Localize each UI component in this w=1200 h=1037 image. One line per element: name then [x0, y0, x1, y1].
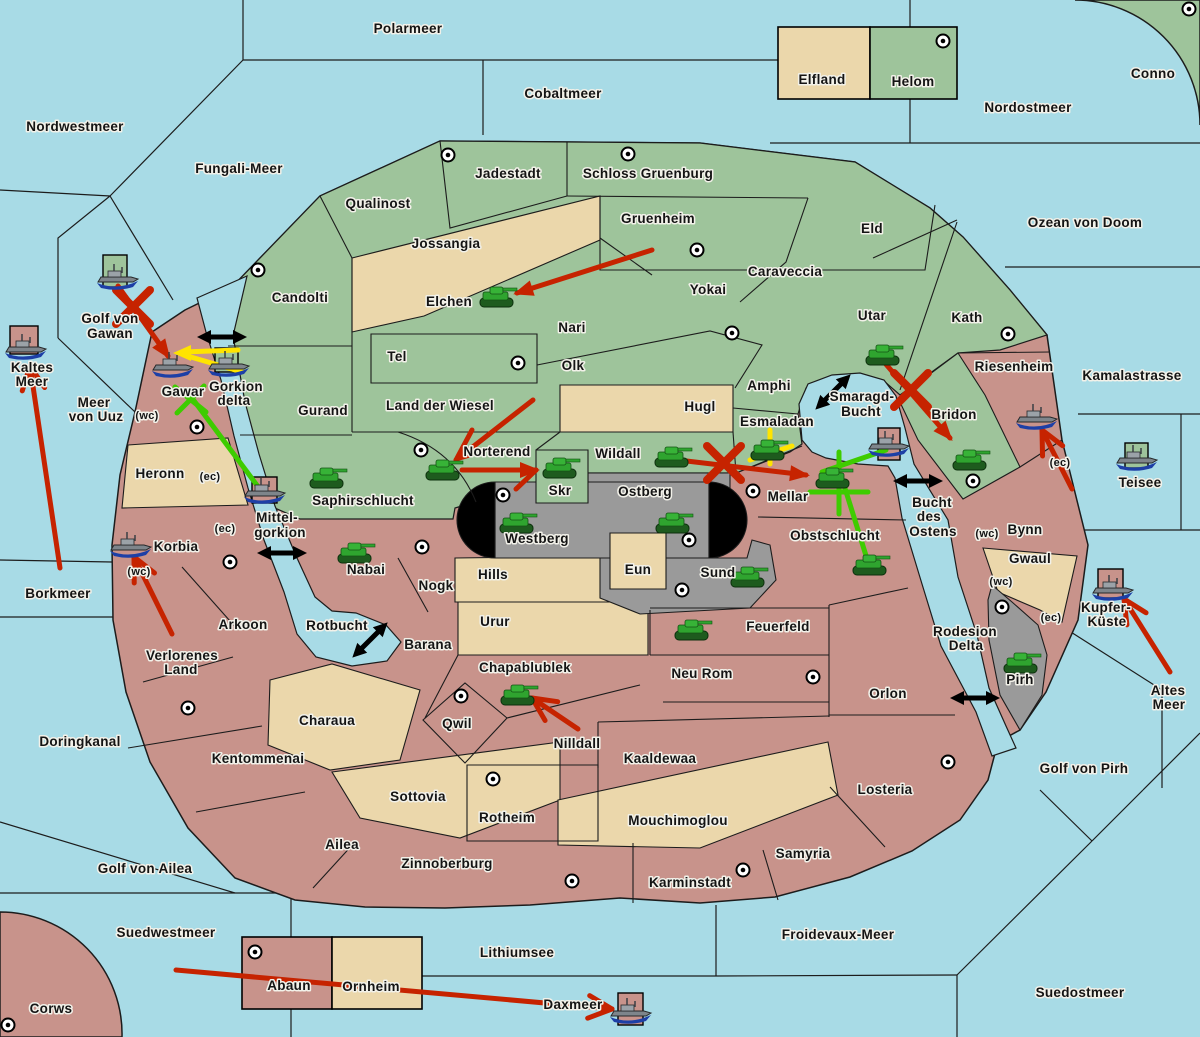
territory-label[interactable]: Mouchimoglou: [628, 813, 728, 828]
sea-label[interactable]: Polarmeer: [374, 21, 443, 36]
sea-label[interactable]: Teisee: [1119, 475, 1162, 490]
sea-label[interactable]: Ozean von Doom: [1028, 215, 1142, 230]
territory-label[interactable]: Corws: [30, 1001, 73, 1016]
sea-label[interactable]: Bucht: [912, 495, 952, 510]
territory-label[interactable]: Bynn: [1008, 522, 1043, 537]
supply-center-icon: [683, 534, 696, 547]
sea-label[interactable]: Meer: [16, 374, 49, 389]
territory-label[interactable]: Tel: [387, 349, 406, 364]
territory-label[interactable]: Zinnoberburg: [401, 856, 492, 871]
territory-label[interactable]: Neu Rom: [671, 666, 732, 681]
sea-label[interactable]: Ostens: [909, 524, 957, 539]
supply-center-icon: [691, 244, 704, 257]
supply-center-icon: [415, 444, 428, 457]
coast-anchor-label: (wc): [127, 566, 150, 578]
territory-label[interactable]: Gawar: [162, 384, 205, 399]
sea-label[interactable]: Doringkanal: [39, 734, 120, 749]
coast-anchor-label: (wc): [135, 410, 158, 422]
sea-label[interactable]: Mittel-: [256, 510, 298, 525]
sea-label[interactable]: Kupfer-: [1081, 600, 1131, 615]
coast-anchor-label: (ec): [200, 471, 221, 483]
sea-label[interactable]: Rotbucht: [306, 618, 368, 633]
supply-center-icon: [566, 875, 579, 888]
supply-center-icon: [622, 148, 635, 161]
sea-label[interactable]: Fungali-Meer: [195, 161, 283, 176]
territory-label[interactable]: Ailea: [325, 837, 359, 852]
territory-label[interactable]: Land: [164, 662, 197, 677]
sea-label[interactable]: Meer: [1153, 697, 1186, 712]
sea-label[interactable]: Meer: [78, 395, 111, 410]
supply-center-icon: [807, 671, 820, 684]
sea-label[interactable]: Kamalastrasse: [1082, 368, 1181, 383]
territory-label[interactable]: Nogk: [419, 578, 454, 593]
supply-center-icon: [512, 357, 525, 370]
supply-center-icon: [747, 485, 760, 498]
territory-label[interactable]: Hugl: [684, 399, 715, 414]
sea-label[interactable]: Suedostmeer: [1036, 985, 1125, 1000]
sea-label[interactable]: Gawan: [87, 326, 133, 341]
sea-label[interactable]: Gorkion: [209, 379, 263, 394]
sea-label[interactable]: Lithiumsee: [480, 945, 554, 960]
territory-label[interactable]: Kath: [951, 310, 982, 325]
territory-label[interactable]: Utar: [858, 308, 887, 323]
territory-label[interactable]: Gruenheim: [621, 211, 695, 226]
territory-label[interactable]: Eun: [625, 562, 651, 577]
territory-label[interactable]: Mellar: [768, 489, 809, 504]
supply-center-icon: [416, 541, 429, 554]
supply-center-icon: [252, 264, 265, 277]
sea-label[interactable]: Borkmeer: [25, 586, 91, 601]
territory-label[interactable]: Qualinost: [346, 196, 411, 211]
territory-label[interactable]: Heronn: [135, 466, 184, 481]
supply-center-icon: [676, 584, 689, 597]
territory-label[interactable]: Rotheim: [479, 810, 535, 825]
territory-label[interactable]: Barana: [404, 637, 452, 652]
territory-label[interactable]: Gwaul: [1009, 551, 1051, 566]
supply-center-icon: [1002, 328, 1015, 341]
territory-label[interactable]: Chapablublek: [479, 660, 571, 675]
supply-center-icon: [1183, 3, 1196, 16]
territory-label[interactable]: Gurand: [298, 403, 348, 418]
sea-label[interactable]: Golf von: [81, 311, 138, 326]
territory-label[interactable]: Feuerfeld: [746, 619, 809, 634]
supply-center-icon: [737, 864, 750, 877]
supply-center-icon: [182, 702, 195, 715]
territory-label[interactable]: Schloss Gruenburg: [583, 166, 713, 181]
territory-label[interactable]: Caraveccia: [748, 264, 823, 279]
supply-center-icon: [249, 946, 262, 959]
game-map[interactable]: PolarmeerCobaltmeerNordostmeerNordwestme…: [0, 0, 1200, 1037]
sea-label[interactable]: des: [917, 509, 941, 524]
sea-label[interactable]: Golf von Pirh: [1040, 761, 1129, 776]
territory-label[interactable]: Charaua: [299, 713, 355, 728]
map-canvas: PolarmeerCobaltmeerNordostmeerNordwestme…: [0, 0, 1200, 1037]
sea-label[interactable]: gorkion: [254, 525, 306, 540]
territory-label[interactable]: Skr: [549, 483, 572, 498]
supply-center-icon: [455, 690, 468, 703]
territory-label[interactable]: Abaun: [267, 978, 311, 993]
sea-label[interactable]: Küste: [1087, 614, 1126, 629]
territory-label[interactable]: Qwil: [442, 716, 472, 731]
territory-label[interactable]: Esmaladan: [740, 414, 814, 429]
territory-label[interactable]: Bridon: [931, 407, 976, 422]
territory-label[interactable]: Hills: [478, 567, 508, 582]
supply-center-icon: [442, 149, 455, 162]
territory-label[interactable]: Olk: [562, 358, 585, 373]
sea-label[interactable]: Smaragd-: [830, 389, 895, 404]
territory-label[interactable]: Jossangia: [412, 236, 481, 251]
sea-label[interactable]: Delta: [949, 638, 984, 653]
sea-label[interactable]: Daxmeer: [543, 997, 603, 1012]
territory-label[interactable]: Saphirschlucht: [312, 493, 414, 508]
sea-label[interactable]: Rodesion: [933, 624, 997, 639]
supply-center-icon: [967, 475, 980, 488]
territory-label[interactable]: Wildall: [595, 446, 640, 461]
territory-label[interactable]: Helom: [892, 74, 935, 89]
sea-label[interactable]: Bucht: [841, 404, 881, 419]
coast-anchor-label: (ec): [215, 523, 236, 535]
territory-label[interactable]: Candolti: [272, 290, 328, 305]
territory-label[interactable]: Conno: [1131, 66, 1175, 81]
island-box[interactable]: [242, 937, 422, 1009]
territory-label[interactable]: Pirh: [1006, 672, 1033, 687]
sea-label[interactable]: von Uuz: [69, 409, 124, 424]
coast-anchor-label: (ec): [1050, 457, 1071, 469]
supply-center-icon: [224, 556, 237, 569]
sea-label[interactable]: Kaltes: [11, 360, 53, 375]
territory-label[interactable]: Eld: [861, 221, 883, 236]
territory-label[interactable]: Karminstadt: [649, 875, 731, 890]
sea-label[interactable]: Golf von Ailea: [98, 861, 193, 876]
territory-label[interactable]: Nari: [558, 320, 585, 335]
territory-label[interactable]: Riesenheim: [975, 359, 1054, 374]
territory-label[interactable]: Ornheim: [342, 979, 400, 994]
supply-center-icon: [191, 421, 204, 434]
territory-label[interactable]: Norterend: [463, 444, 530, 459]
territory-label[interactable]: Land der Wiesel: [386, 398, 494, 413]
supply-center-icon: [487, 773, 500, 786]
territory-label[interactable]: Korbia: [154, 539, 199, 554]
territory-label[interactable]: Jadestadt: [475, 166, 541, 181]
sea-label[interactable]: Froidevaux-Meer: [782, 927, 895, 942]
coast-anchor-label: (wc): [989, 576, 1012, 588]
territory-label[interactable]: Nabai: [347, 562, 385, 577]
territory-label[interactable]: Westberg: [505, 531, 569, 546]
territory-label[interactable]: Kentommenai: [212, 751, 305, 766]
supply-center-icon: [996, 601, 1009, 614]
territory-label[interactable]: Amphi: [747, 378, 791, 393]
territory-label[interactable]: Urur: [480, 614, 510, 629]
territory-label[interactable]: Yokai: [690, 282, 727, 297]
territory-label[interactable]: Losteria: [858, 782, 913, 797]
territory-label[interactable]: Elchen: [426, 294, 472, 309]
territory-label[interactable]: Obstschlucht: [790, 528, 880, 543]
territory-label[interactable]: Verlorenes: [146, 648, 218, 663]
sea-label[interactable]: delta: [217, 393, 250, 408]
territory-label[interactable]: Sund: [701, 565, 736, 580]
territory-label[interactable]: Sottovia: [390, 789, 446, 804]
support-order-yellow: [183, 350, 238, 352]
supply-center-icon: [942, 756, 955, 769]
territory-label[interactable]: Samyria: [776, 846, 831, 861]
territory-area[interactable]: [610, 533, 666, 589]
territory-label[interactable]: Elfland: [798, 72, 845, 87]
sea-label[interactable]: Suedwestmeer: [117, 925, 216, 940]
supply-center-icon: [2, 1019, 15, 1032]
territory-label[interactable]: Arkoon: [218, 617, 267, 632]
sea-label[interactable]: Nordostmeer: [984, 100, 1072, 115]
supply-center-icon: [937, 35, 950, 48]
coast-anchor-label: (wc): [975, 528, 998, 540]
sea-label[interactable]: Nordwestmeer: [26, 119, 124, 134]
sea-label[interactable]: Cobaltmeer: [524, 86, 602, 101]
supply-center-icon: [726, 327, 739, 340]
territory-label[interactable]: Kaaldewaa: [624, 751, 697, 766]
coast-anchor-label: (ec): [1041, 612, 1062, 624]
sea-label[interactable]: Altes: [1151, 683, 1186, 698]
territory-label[interactable]: Orlon: [869, 686, 907, 701]
supply-center-icon: [497, 489, 510, 502]
territory-label[interactable]: Nilldall: [554, 736, 601, 751]
territory-label[interactable]: Ostberg: [618, 484, 672, 499]
